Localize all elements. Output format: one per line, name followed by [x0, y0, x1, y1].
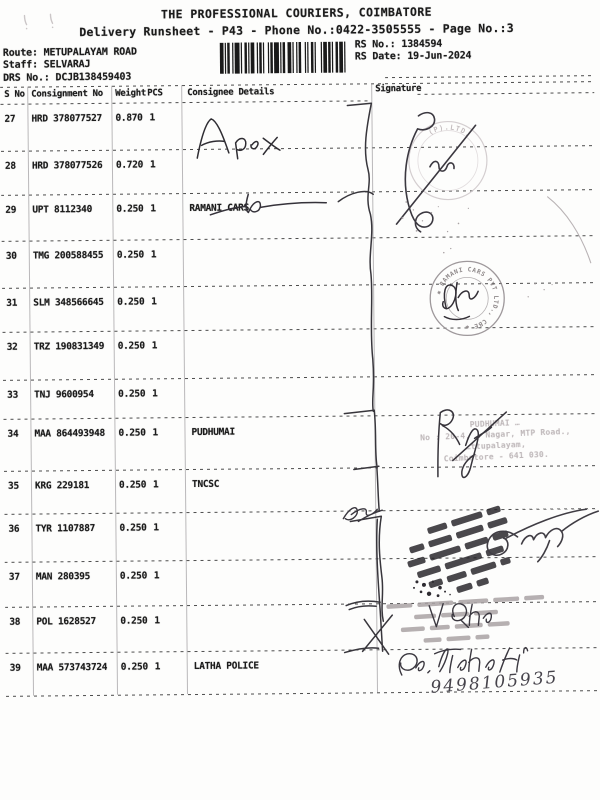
- stamp-word-blob: [464, 536, 489, 549]
- runsheet-sheet: THE PROFESSIONAL COURIERS, COIMBATORE De…: [0, 0, 600, 800]
- table-row: 29 UPT 8112340 0.250 1 RAMANI CARS: [0, 0, 596, 3]
- cell-pcs: 1: [150, 203, 156, 214]
- rs-no-label: RS No.:: [355, 39, 396, 50]
- dashed-row-separator: [1, 145, 595, 152]
- cell-sno: 30: [6, 251, 17, 262]
- barcode-bar: [251, 42, 255, 73]
- cell-consignment: MAN 280395: [36, 571, 90, 583]
- column-separator-line: [111, 86, 118, 695]
- stamp-word-blob: [417, 565, 442, 578]
- cell-pcs: 1: [149, 112, 155, 123]
- table-row: 36 TYR 1107887 0.250 1: [0, 0, 596, 3]
- stamp-word-blob: [487, 517, 508, 529]
- cell-consignment: KRG 229181: [35, 480, 89, 492]
- stamp-word-blob: [476, 577, 489, 587]
- cell-sno: 36: [8, 524, 19, 535]
- barcode-bar: [257, 42, 259, 73]
- dashed-row-separator: [4, 465, 598, 472]
- dashed-row-separator: [385, 75, 594, 78]
- cell-consignment: TMG 200588455: [33, 250, 104, 262]
- cell-consignee: PUDHUMAI: [191, 427, 234, 438]
- table-body: 27 HRD 378077527 0.870 1 28 HRD 37807752…: [0, 0, 596, 3]
- col-header-consignment: Consignment No: [31, 89, 103, 100]
- barcode-bar: [280, 42, 282, 73]
- cell-consignment: SLM 348566645: [33, 297, 104, 309]
- staff-label: Staff:: [3, 60, 38, 71]
- barcode-bar: [332, 42, 334, 73]
- tamil-stamp-dark: [399, 504, 524, 605]
- col-header-sno: S No: [4, 90, 25, 100]
- row27-signature-scrawl: [395, 112, 476, 232]
- stamp-word-blob: [486, 505, 501, 515]
- drs-value: DCJB138459403: [55, 72, 131, 84]
- row39-signature-scrawl: [399, 648, 528, 675]
- cell-sno: 27: [4, 114, 15, 125]
- column-separator-line: [27, 87, 34, 696]
- cell-sno: 28: [5, 161, 16, 172]
- stamp-word-blob: [430, 625, 450, 631]
- cell-consignment: HRD 378077526: [32, 160, 103, 172]
- cell-weight: 0.250: [121, 661, 148, 672]
- svg-text:✱ RAMANI CARS PVT LTD., CBE ✱: ✱ RAMANI CARS PVT LTD., CBE ✱: [435, 266, 500, 331]
- stamp-word-blob: [470, 561, 497, 575]
- barcode-bar: [299, 42, 302, 73]
- cell-weight: 0.250: [118, 340, 145, 351]
- barcode-bar: [274, 42, 279, 73]
- row27-consignee-handwriting: [192, 111, 280, 165]
- barcode-bar: [323, 42, 327, 73]
- cell-weight: 0.720: [116, 159, 143, 170]
- stamp-word-blob: [524, 595, 544, 601]
- drs-label: DRS No.:: [3, 72, 50, 83]
- table-grid-lines: [0, 0, 596, 3]
- cell-weight: 0.250: [118, 427, 145, 438]
- courier-stamp-arc-text: (P).LTD.: [427, 123, 473, 139]
- ramani-signature-scrawl: [443, 282, 479, 319]
- stamp-word-blob: [488, 621, 510, 627]
- barcode-bar: [225, 43, 227, 74]
- table-row: 31 SLM 348566645 0.250 1: [0, 0, 596, 3]
- barcode-bar: [315, 42, 317, 73]
- barcode-bar: [268, 42, 270, 73]
- cell-pcs: 1: [155, 661, 161, 672]
- dashed-row-separator: [417, 92, 594, 95]
- stamp-word-blob: [414, 613, 436, 619]
- stamp-word-blob: [455, 623, 483, 629]
- dashed-row-separator: [2, 282, 596, 289]
- barcode-bar: [307, 42, 309, 73]
- cell-pcs: 1: [151, 296, 157, 307]
- route-label: Route:: [3, 48, 38, 59]
- column-separator-line: [371, 83, 378, 692]
- cell-pcs: 1: [153, 522, 159, 533]
- row38-signature-scrawl: [429, 603, 491, 628]
- barcode-bar: [335, 42, 338, 73]
- cell-consignment: TYR 1107887: [35, 523, 95, 535]
- cell-consignment: MAA 864493948: [34, 428, 105, 440]
- cell-consignment: UPT 8112340: [32, 204, 92, 216]
- staff-value: SELVARAJ: [44, 59, 91, 70]
- cell-pcs: 1: [151, 249, 157, 260]
- barcode-bar: [270, 42, 273, 73]
- stamp-word-blob: [427, 522, 448, 534]
- stamp-word-blob: [485, 545, 504, 557]
- stamp-word-blob: [401, 626, 425, 632]
- stamp-word-blob: [455, 524, 484, 539]
- table-row: 30 TMG 200588455 0.250 1: [0, 0, 596, 3]
- cell-pcs: 1: [152, 388, 158, 399]
- staff-line: Staff: SELVARAJ: [3, 59, 90, 71]
- barcode-bar: [220, 43, 224, 74]
- column-separator-line: [181, 85, 188, 694]
- hand-vertical-line: [337, 103, 392, 654]
- barcode-bar: [283, 42, 286, 73]
- rs-date-value: 19-Jun-2024: [407, 50, 471, 62]
- cell-consignment: TRZ 190831349: [34, 341, 105, 353]
- cell-pcs: 1: [152, 427, 158, 438]
- row37-signature-scrawl: [487, 509, 599, 562]
- barcode-bar: [263, 42, 265, 73]
- page-title: THE PROFESSIONAL COURIERS, COIMBATORE: [0, 3, 597, 23]
- table-row: 27 HRD 378077527 0.870 1: [0, 0, 596, 3]
- stamp-word-blob: [446, 635, 470, 641]
- cell-weight: 0.250: [117, 296, 144, 307]
- stamp-word-blob: [428, 534, 453, 547]
- cell-consignment: HRD 378077527: [31, 113, 102, 125]
- cell-weight: 0.250: [120, 570, 147, 581]
- cell-sno: 37: [9, 572, 20, 583]
- svg-text:(P).LTD.: (P).LTD.: [427, 123, 473, 139]
- rs-no-value: 1384594: [401, 39, 442, 50]
- dashed-row-separator: [2, 235, 596, 242]
- cell-sno: 32: [7, 342, 18, 353]
- route-value: METUPALAYAM ROAD: [44, 47, 137, 59]
- barcode-bar: [248, 42, 250, 73]
- cell-consignee: TNCSC: [192, 479, 219, 490]
- stamp-word-blob: [456, 582, 473, 593]
- rs-date-line: RS Date: 19-Jun-2024: [355, 50, 472, 62]
- col-header-consignee: Consignee Details: [187, 87, 274, 98]
- ink-blot-cluster: [413, 580, 451, 597]
- cell-sno: 39: [10, 663, 21, 674]
- cell-weight: 0.250: [117, 249, 144, 260]
- stamp-word-blob: [444, 552, 482, 570]
- barcode-bar: [235, 43, 240, 74]
- stamp-word-blob: [428, 578, 443, 588]
- barcode-bar: [259, 42, 262, 73]
- barcode-bar: [287, 42, 291, 73]
- barcode-bar: [344, 42, 346, 73]
- table-row: 33 TNJ 9600954 0.250 1: [0, 0, 596, 3]
- cell-sno: 38: [9, 617, 20, 628]
- col-header-pcs: PCS: [147, 88, 162, 98]
- dashed-row-separator: [5, 556, 599, 563]
- barcode-bar: [292, 42, 294, 73]
- barcode-image: [218, 42, 350, 77]
- col-header-signature: Signature: [375, 84, 421, 94]
- stamp-word-blob: [475, 634, 489, 639]
- barcode-bar: [241, 43, 243, 74]
- courier-round-stamp: (P).LTD.: [409, 121, 488, 200]
- cell-weight: 0.250: [119, 479, 146, 490]
- cell-weight: 0.870: [115, 112, 142, 123]
- dashed-row-separator: [5, 601, 599, 608]
- stamp-word-blob: [492, 530, 509, 541]
- ramani-cars-stamp: ✱ RAMANI CARS PVT LTD., CBE ✱: [430, 261, 505, 336]
- cell-consignee: RAMANI CARS: [189, 202, 249, 214]
- cell-sno: 35: [8, 481, 19, 492]
- dashed-row-separator: [6, 690, 600, 697]
- cell-pcs: 1: [152, 340, 158, 351]
- dashed-row-separator: [0, 100, 369, 105]
- barcode-bar: [321, 42, 323, 73]
- barcode-bar: [296, 42, 298, 73]
- cell-weight: 0.250: [119, 522, 146, 533]
- cell-pcs: 1: [150, 159, 156, 170]
- cell-weight: 0.250: [120, 615, 147, 626]
- dashed-row-separator: [4, 508, 598, 515]
- cell-sno: 34: [7, 429, 18, 440]
- cell-pcs: 1: [154, 615, 160, 626]
- barcode-bar: [244, 42, 247, 73]
- route-line: Route: METUPALAYAM ROAD: [3, 47, 137, 59]
- barcode-bar: [227, 43, 230, 74]
- barcode-bar: [339, 42, 343, 73]
- dashed-row-separator: [6, 647, 600, 654]
- dashed-row-separator: [3, 326, 597, 333]
- stamp-word-blob: [409, 543, 425, 554]
- col-header-weight: Weight: [115, 88, 146, 98]
- barcode-bar: [305, 42, 307, 73]
- cell-consignment: TNJ 9600954: [34, 389, 94, 401]
- barcode-bar: [311, 42, 314, 73]
- table-row: 38 POL 1628527 0.250 1: [0, 0, 596, 3]
- rs-date-label: RS Date:: [355, 51, 402, 62]
- cell-consignment: MAA 573743724: [37, 662, 108, 674]
- table-row: 37 MAN 280395 0.250 1: [0, 0, 596, 3]
- barcode-bar: [232, 43, 234, 74]
- cell-pcs: 1: [154, 570, 160, 581]
- cell-consignee: LATHA POLICE: [194, 660, 259, 672]
- dashed-row-separator: [1, 189, 595, 196]
- pudhumai-address-stamp: PUDHUMAI … No : 20-4, … Nagar, MTP Road.…: [404, 414, 588, 466]
- page-subtitle: Delivery Runsheet - P43 - Phone No.:0422…: [0, 20, 597, 40]
- barcode-bar: [328, 42, 331, 73]
- drs-line: DRS No.: DCJB138459403: [3, 72, 131, 84]
- table-row: 34 MAA 864493948 0.250 1 PUDHUMAI: [0, 0, 596, 3]
- cell-sno: 31: [6, 298, 17, 309]
- stamp-word-blob: [474, 610, 498, 616]
- table-row: 28 HRD 378077526 0.720 1: [0, 0, 596, 3]
- scanned-delivery-runsheet: THE PROFESSIONAL COURIERS, COIMBATORE De…: [0, 0, 600, 800]
- table-row: 32 TRZ 190831349 0.250 1: [0, 0, 596, 3]
- dashed-row-separator: [3, 374, 597, 381]
- row39-phone-handwriting: 9498105935: [430, 668, 559, 698]
- cell-sno: 33: [7, 390, 18, 401]
- ramani-stamp-arc-text: ✱ RAMANI CARS PVT LTD., CBE ✱: [435, 266, 500, 331]
- table-row: 35 KRG 229181 0.250 1 TNCSC: [0, 0, 596, 3]
- cell-weight: 0.250: [116, 203, 143, 214]
- stamp-word-blob: [441, 611, 469, 617]
- stamp-word-blob: [451, 511, 483, 527]
- rs-no-line: RS No.: 1384594: [355, 39, 442, 51]
- stamp-word-blob: [423, 637, 441, 643]
- cell-weight: 0.250: [118, 388, 145, 399]
- stamp-word-blob: [446, 571, 467, 583]
- faint-pencil-arc: [547, 196, 591, 263]
- cell-consignment: POL 1628527: [36, 616, 96, 628]
- cell-sno: 29: [5, 205, 16, 216]
- table-row: 39 MAA 573743724 0.250 1 LATHA POLICE: [0, 0, 596, 3]
- cell-pcs: 1: [153, 479, 159, 490]
